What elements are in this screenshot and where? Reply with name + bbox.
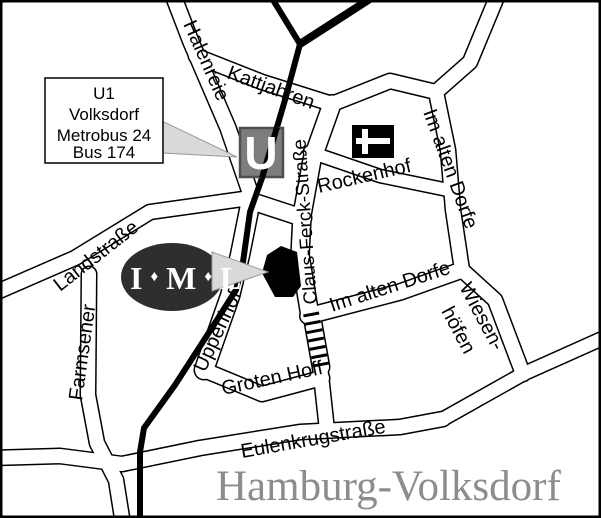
map-canvas: U I♦M♦L Halenreie Kattjahren Landstraße … (0, 0, 601, 518)
station-sign-line4: Bus 174 (73, 143, 135, 162)
iml-diamond-1: ♦ (150, 269, 158, 285)
church-flag-crossbar-v (362, 129, 368, 154)
ubahn-station-icon: U (240, 127, 283, 179)
station-sign: U1 Volksdorf Metrobus 24 Bus 174 (45, 78, 163, 163)
church-flag-icon (352, 125, 394, 158)
station-sign-line2: Volksdorf (69, 105, 139, 124)
region-title: Hamburg-Volksdorf (216, 463, 561, 510)
iml-letter-i: I (130, 260, 142, 296)
ubahn-u-glyph: U (244, 127, 277, 179)
iml-letter-m: M (166, 260, 196, 296)
volksdorf-map: U I♦M♦L Halenreie Kattjahren Landstraße … (0, 0, 601, 518)
church-flag-crossbar-h (356, 138, 390, 144)
station-sign-line1: U1 (93, 84, 115, 103)
iml-diamond-2: ♦ (204, 269, 212, 285)
